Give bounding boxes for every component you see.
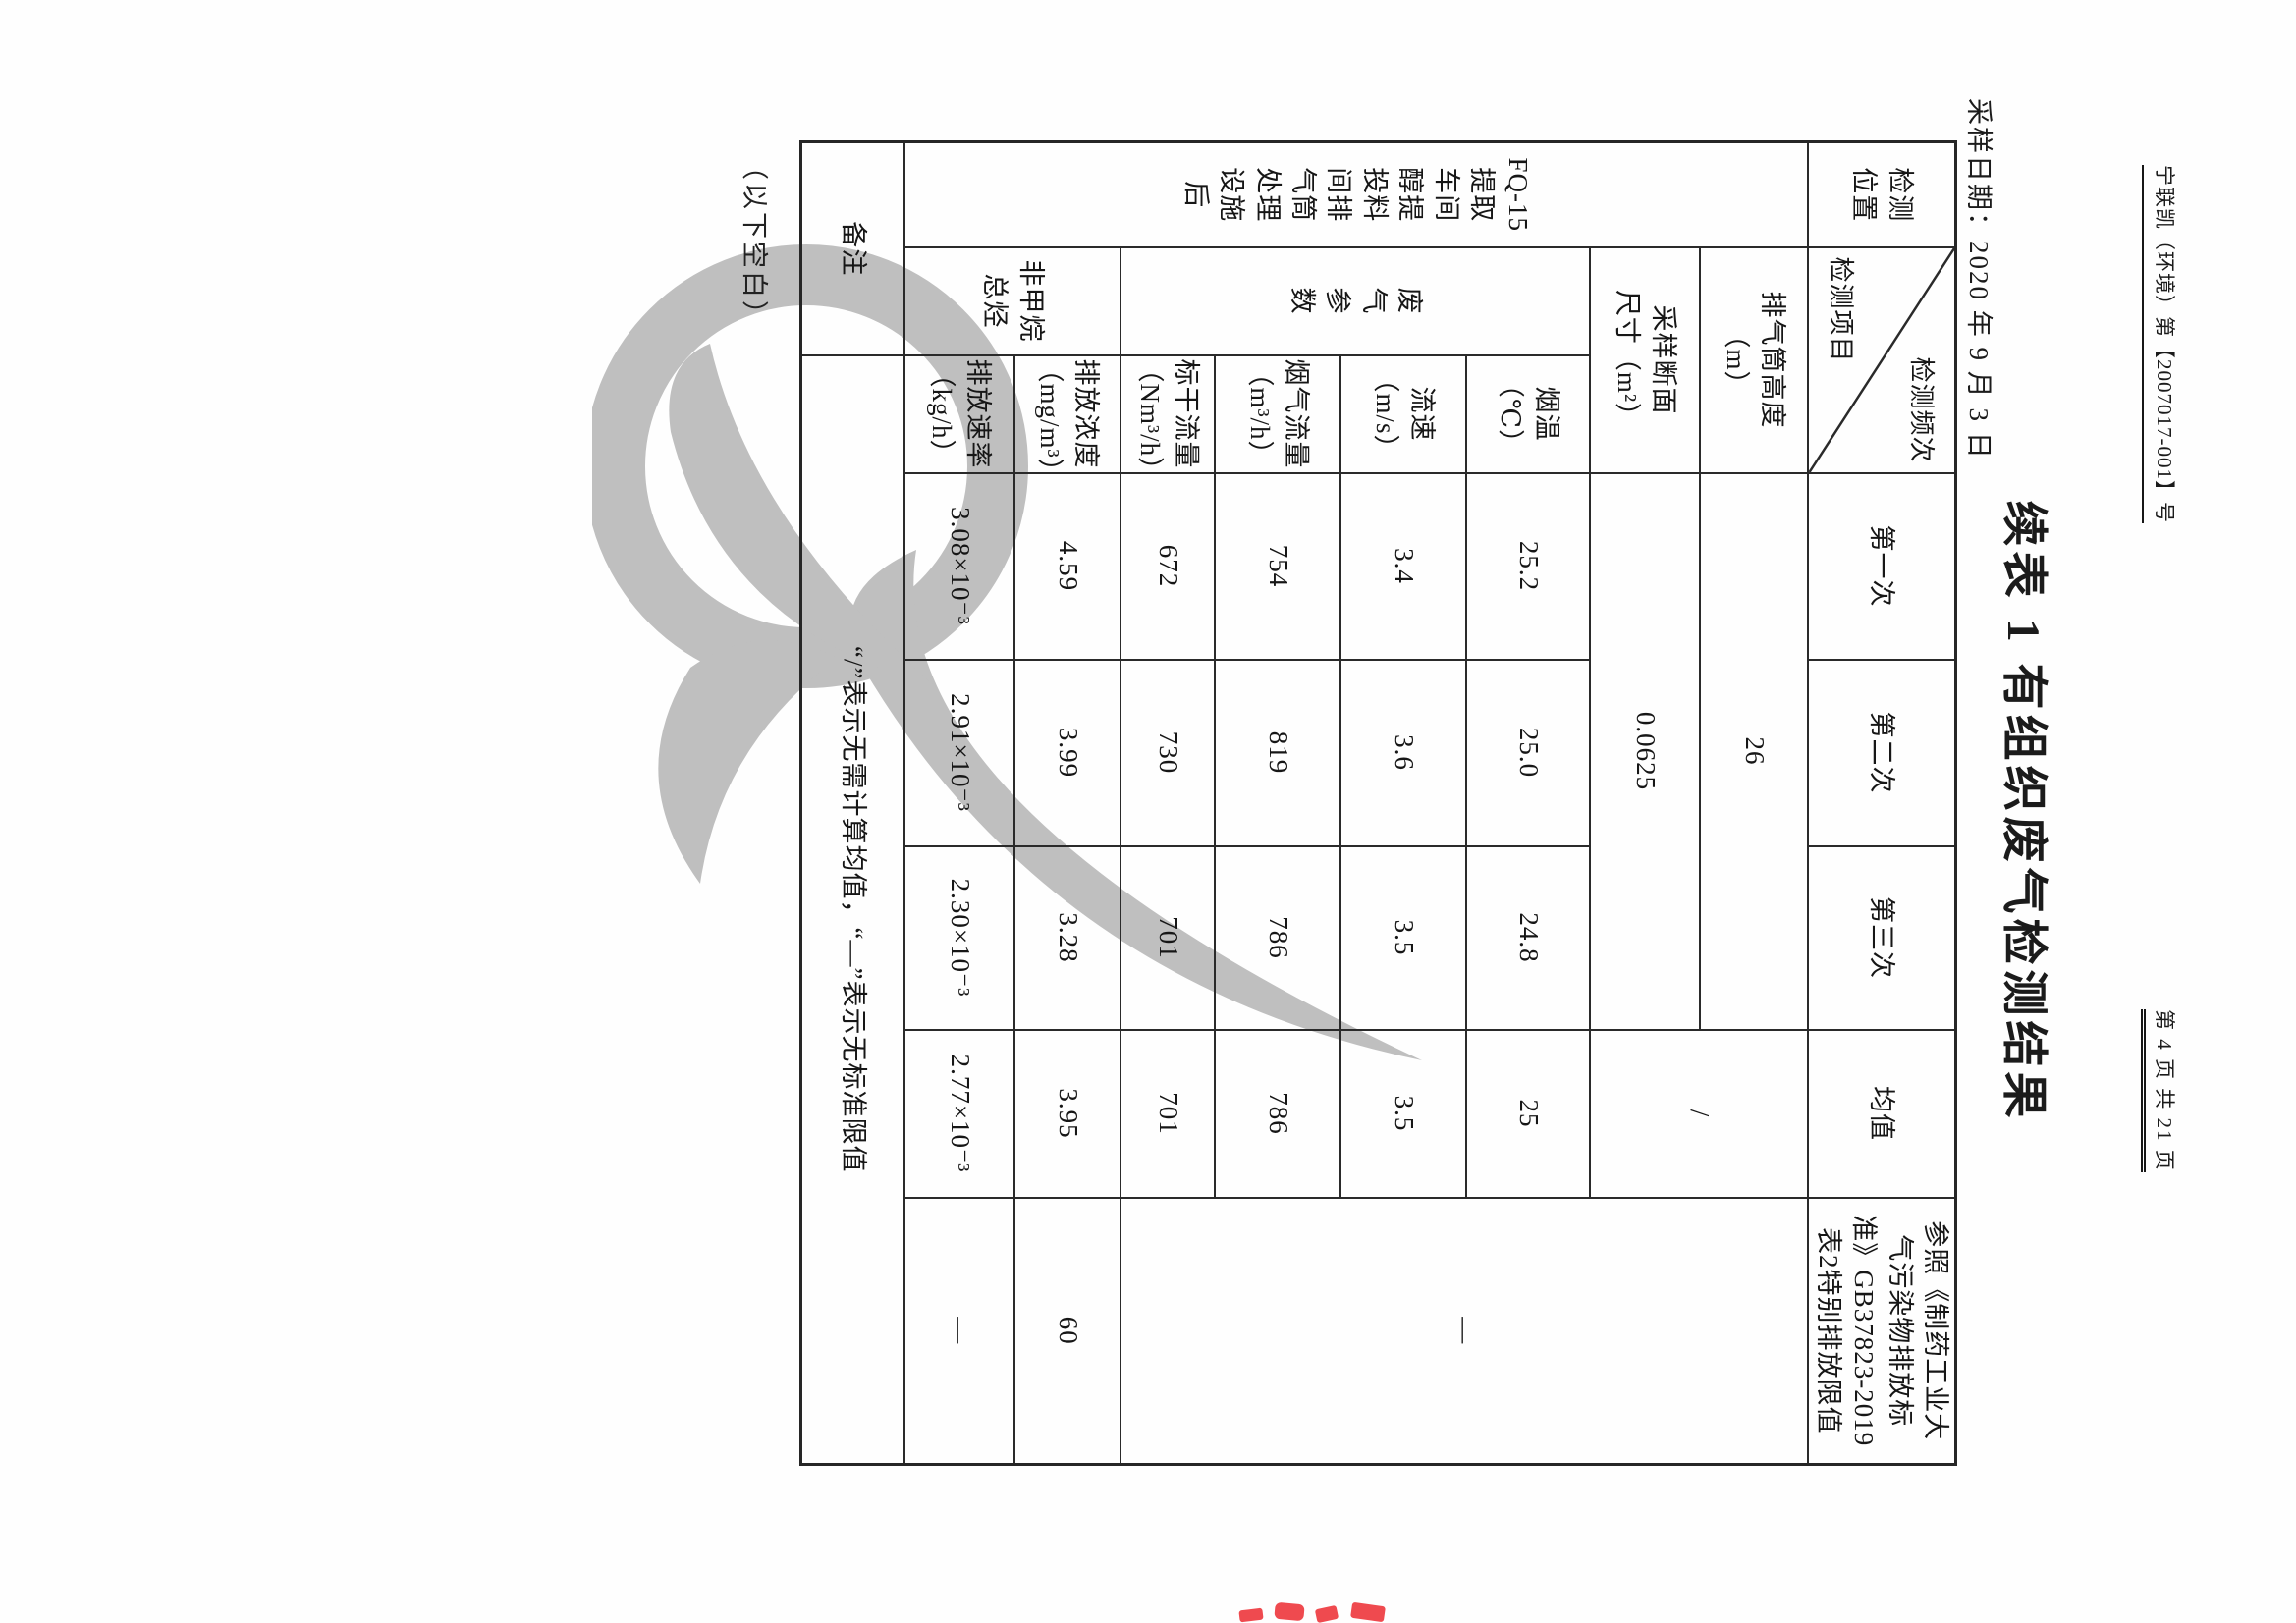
report-number: 宁联凯（环境）第【2007017-001】号 xyxy=(2142,165,2180,523)
location-value: FQ-15 提取 车间 醇提 投料 间排 气筒 处理 设施 后 xyxy=(905,142,1809,247)
blank-below-note: （以下空白） xyxy=(738,153,776,330)
seal-mark xyxy=(1238,1608,1263,1623)
remark-content: “/”表示无需计算均值，“—”表示无标准限值 xyxy=(801,355,905,1465)
concentration-standard: 60 xyxy=(1015,1198,1121,1465)
dry-flow-v2: 730 xyxy=(1121,660,1216,846)
concentration-v2: 3.99 xyxy=(1015,660,1121,846)
dry-flow-v1: 672 xyxy=(1121,473,1216,660)
header-item: 检测项目 xyxy=(1824,257,1858,363)
header-location: 检测 位置 xyxy=(1809,142,1956,247)
header-mean: 均值 xyxy=(1809,1030,1956,1198)
rate-label: 排放速率 （kg/h） xyxy=(905,355,1015,473)
rate-standard: — xyxy=(905,1198,1015,1465)
rate-mean: 2.77×10⁻³ xyxy=(905,1030,1015,1198)
header-standard-reference: 参照《制药工业大 气污染物排放标 准》GB37823-2019 表2特别排放限值 xyxy=(1809,1198,1956,1465)
remark-row: 备注 “/”表示无需计算均值，“—”表示无标准限值 xyxy=(801,142,905,1465)
sampling-date: 采样日期：2020 年 9 月 3 日 xyxy=(1962,98,2000,460)
red-seal-fragment xyxy=(1237,1600,1385,1623)
remark-label: 备注 xyxy=(801,142,905,355)
stack-height-label: 排气筒高度 （m） xyxy=(1701,247,1809,473)
stack-height-value: 26 xyxy=(1701,473,1809,1030)
flue-flow-v2: 819 xyxy=(1216,660,1341,846)
concentration-v1: 4.59 xyxy=(1015,473,1121,660)
rate-v2: 2.91×10⁻³ xyxy=(905,660,1015,846)
seal-mark xyxy=(1315,1605,1339,1623)
velocity-label: 流速 （m/s） xyxy=(1341,355,1467,473)
emission-results-table: 检测 位置 检测频次 检测项目 第一次 第二次 第三次 均值 参照《制药工业大 … xyxy=(799,140,1957,1466)
dry-flow-label: 标干流量 （Nm³/h） xyxy=(1121,355,1216,473)
concentration-v3: 3.28 xyxy=(1015,846,1121,1030)
velocity-v1: 3.4 xyxy=(1341,473,1467,660)
velocity-v2: 3.6 xyxy=(1341,660,1467,846)
dry-flow-mean: 701 xyxy=(1121,1030,1216,1198)
seal-mark xyxy=(1274,1602,1304,1622)
document-sheet: 宁联凯（环境）第【2007017-001】号 第 4 页 共 21 页 续表 1… xyxy=(0,0,2296,1623)
temperature-mean: 25 xyxy=(1467,1030,1591,1198)
header-second: 第二次 xyxy=(1809,660,1956,846)
flue-flow-mean: 786 xyxy=(1216,1030,1341,1198)
header-row: 检测 位置 检测频次 检测项目 第一次 第二次 第三次 均值 参照《制药工业大 … xyxy=(1809,142,1956,1465)
temperature-v2: 25.0 xyxy=(1467,660,1591,846)
seal-mark xyxy=(1350,1602,1386,1623)
header-third: 第三次 xyxy=(1809,846,1956,1030)
section-size-label: 采样断面 尺寸（m²） xyxy=(1591,247,1701,473)
scanned-report-page: 宁联凯（环境）第【2007017-001】号 第 4 页 共 21 页 续表 1… xyxy=(0,0,2296,1623)
standard-not-applicable: — xyxy=(1121,1198,1809,1465)
temperature-label: 烟温 （℃） xyxy=(1467,355,1591,473)
flue-flow-label: 烟气流量 （m³/h） xyxy=(1216,355,1341,473)
concentration-label: 排放浓度 （mg/m³） xyxy=(1015,355,1121,473)
header-frequency: 检测频次 xyxy=(1904,356,1939,462)
section-size-value: 0.0625 xyxy=(1591,473,1701,1030)
rate-v3: 2.30×10⁻³ xyxy=(905,846,1015,1030)
stack-height-row: FQ-15 提取 车间 醇提 投料 间排 气筒 处理 设施 后 排气筒高度 （m… xyxy=(1701,142,1809,1465)
nmhc-group: 非甲烷 总烃 xyxy=(905,247,1121,355)
nmhc-concentration-row: 非甲烷 总烃 排放浓度 （mg/m³） 4.59 3.99 3.28 3.95 … xyxy=(1015,142,1121,1465)
rate-v1: 3.08×10⁻³ xyxy=(905,473,1015,660)
velocity-v3: 3.5 xyxy=(1341,846,1467,1030)
mean-not-required: / xyxy=(1591,1030,1809,1198)
header-first: 第一次 xyxy=(1809,473,1956,660)
page-indicator: 第 4 页 共 21 页 xyxy=(2141,1009,2180,1172)
temperature-v1: 25.2 xyxy=(1467,473,1591,660)
flue-flow-v3: 786 xyxy=(1216,846,1341,1030)
dry-flow-v3: 701 xyxy=(1121,846,1216,1030)
temperature-v3: 24.8 xyxy=(1467,846,1591,1030)
header-diagonal-cell: 检测频次 检测项目 xyxy=(1809,247,1956,473)
gas-parameter-group: 废 气 参 数 xyxy=(1121,247,1591,355)
flue-flow-v1: 754 xyxy=(1216,473,1341,660)
document-title: 续表 1 有组织废气检测结果 xyxy=(1995,0,2062,1623)
velocity-mean: 3.5 xyxy=(1341,1030,1467,1198)
concentration-mean: 3.95 xyxy=(1015,1030,1121,1198)
